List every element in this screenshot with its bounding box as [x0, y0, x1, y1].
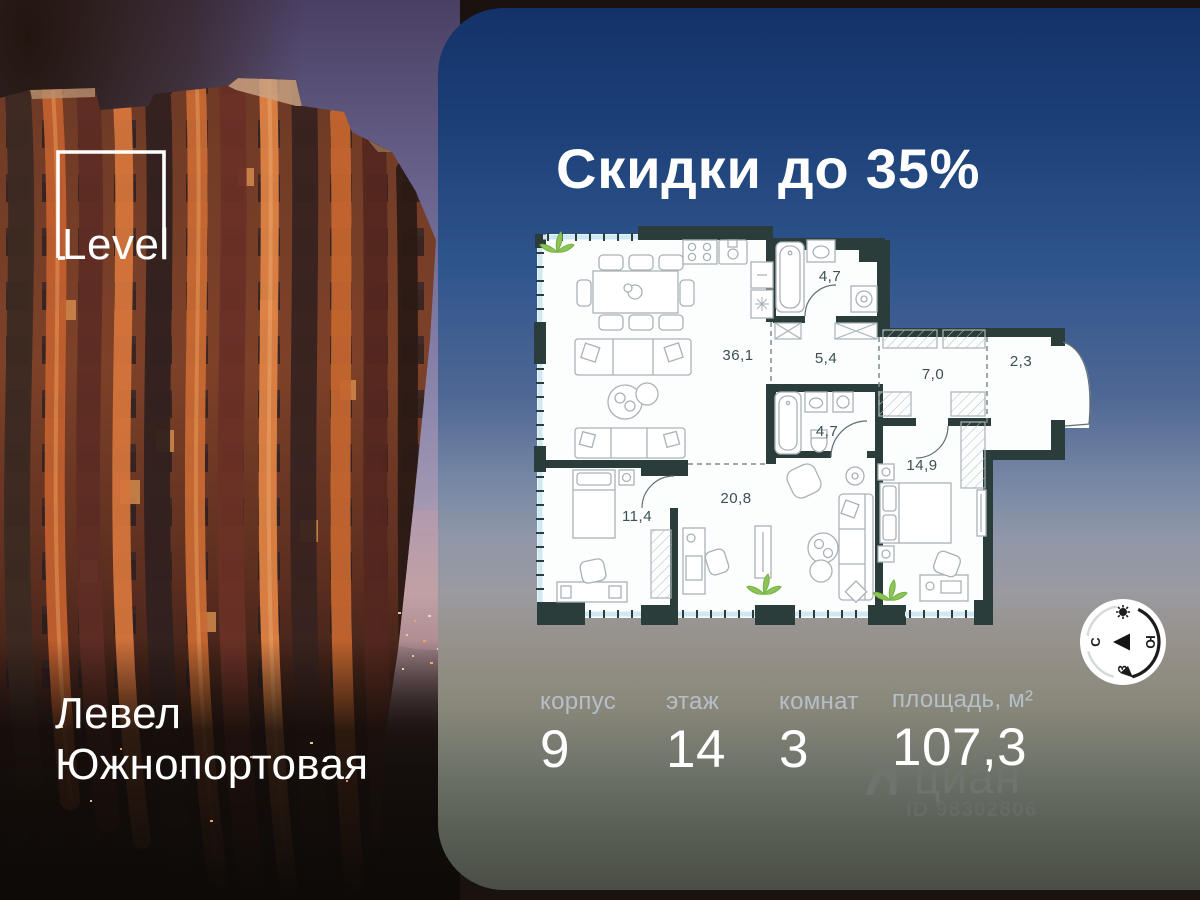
room-label: 14,9 [906, 457, 937, 474]
stat-label: площадь, м² [892, 686, 1033, 714]
compass-north: С [1088, 637, 1103, 647]
project-name-line2: Южнопортовая [55, 739, 368, 790]
cian-brand-text: циан [914, 750, 1021, 804]
sun-icon [1116, 605, 1130, 619]
stat-value: 3 [779, 719, 858, 780]
room-label: 11,4 [622, 508, 652, 525]
stat-value: 14 [666, 719, 726, 780]
room-label: 5,4 [815, 350, 837, 367]
room-label: 36,1 [722, 347, 753, 364]
stat-label: комнат [779, 688, 858, 716]
stat-label: этаж [666, 688, 726, 716]
compass-widget: С Ю З [1077, 596, 1169, 688]
project-name-line1: Левел [55, 688, 368, 739]
level-logo: Level [52, 146, 172, 266]
room-label: 7,0 [922, 366, 944, 383]
project-name: Левел Южнопортовая [55, 688, 368, 790]
stat-floor: этаж 14 [666, 688, 726, 780]
stat-building: корпус 9 [540, 688, 616, 780]
floor-plan: 36,1 4,7 5,4 7,0 2,3 4,7 14,9 20,8 11,4 [533, 226, 1098, 628]
level-logo-text: Level [62, 220, 170, 270]
compass-west: З [1115, 665, 1130, 673]
stat-label: корпус [540, 688, 616, 716]
listing-id: ID 98302806 [906, 798, 1037, 822]
room-label: 4,7 [819, 268, 841, 285]
stat-rooms: комнат 3 [779, 688, 858, 780]
compass-south: Ю [1143, 635, 1158, 648]
cian-logo-icon [866, 759, 904, 795]
ad-banner[interactable]: Level Левел Южнопортовая Скидки до 35% [0, 0, 1200, 900]
room-label: 20,8 [720, 490, 751, 507]
promo-headline: Скидки до 35% [556, 136, 980, 201]
room-label: 2,3 [1010, 353, 1032, 370]
cian-watermark: циан [866, 750, 1021, 804]
room-label: 4,7 [816, 423, 838, 440]
stat-value: 9 [540, 719, 616, 780]
